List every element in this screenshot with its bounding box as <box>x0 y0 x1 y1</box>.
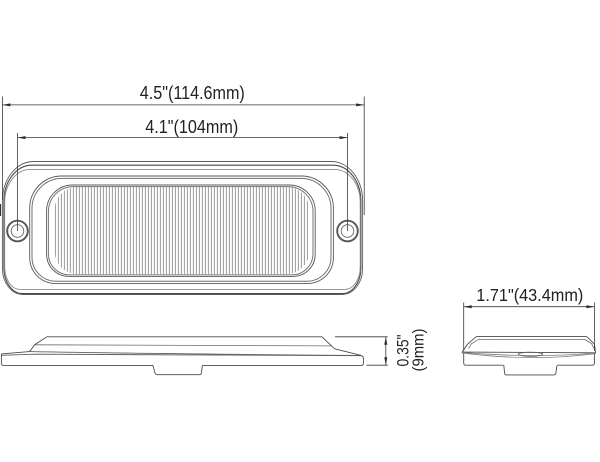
svg-text:(9mm): (9mm) <box>411 329 428 372</box>
svg-text:4.5"(114.6mm): 4.5"(114.6mm) <box>140 82 245 103</box>
svg-text:1.71"(43.4mm): 1.71"(43.4mm) <box>476 285 583 305</box>
svg-text:4.1"(104mm): 4.1"(104mm) <box>145 116 238 137</box>
